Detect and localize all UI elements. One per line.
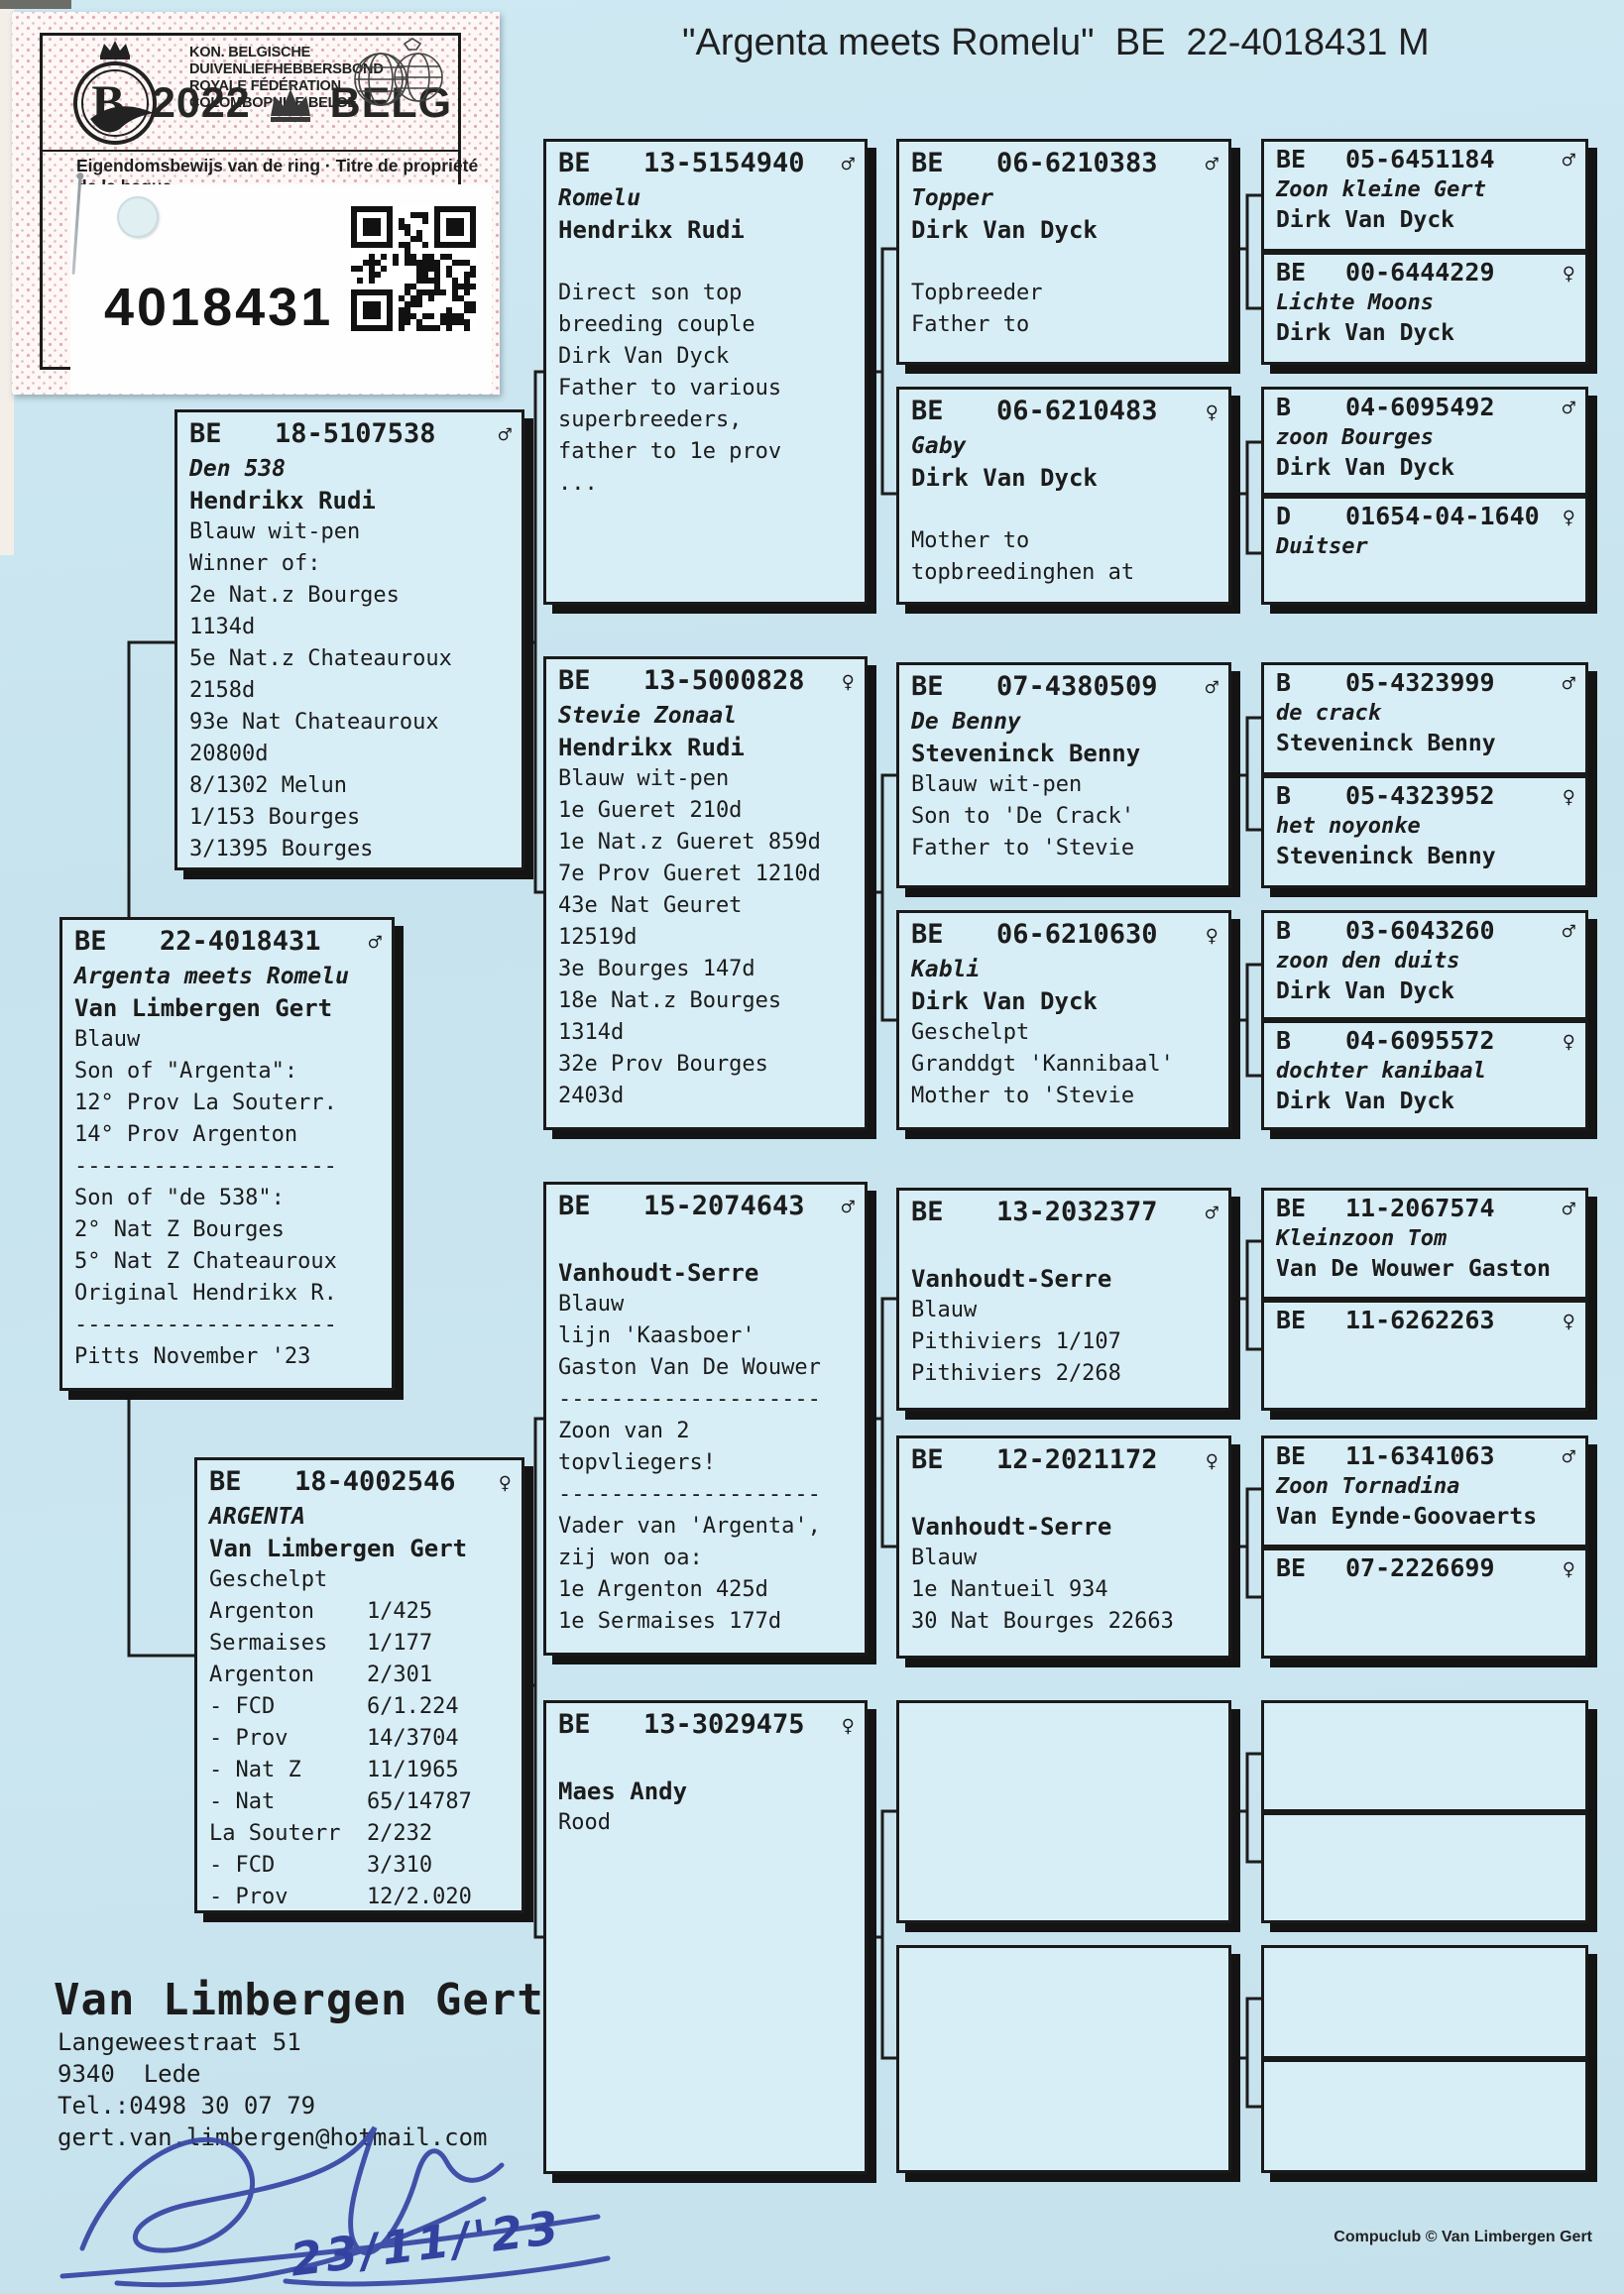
ring-number: 13-2032377: [996, 1194, 1158, 1231]
pedigree-text-line: Argenton 1/425: [209, 1596, 514, 1628]
printer-credit: Compuclub © Van Limbergen Gert: [1334, 2229, 1592, 2246]
pedigree-pair-p3: B05-4323999♂de crackSteveninck BennyB05-…: [1261, 662, 1588, 888]
pedigree-pair-p7: [1261, 1700, 1588, 1923]
pedigree-text-line: 1e Sermaises 177d: [558, 1606, 857, 1638]
pedigree-box-kabli: BE06-6210630♀KabliDirk Van DyckGeschelpt…: [896, 910, 1231, 1130]
ring-row: BE05-6451184♂: [1276, 143, 1577, 175]
bird-name: [1276, 1336, 1577, 1366]
ring-year: 2022: [152, 79, 251, 128]
ring-number: 11-6262263: [1345, 1304, 1495, 1336]
pedigree-pair-p6: BE11-6341063♂Zoon TornadinaVan Eynde-Goo…: [1261, 1435, 1588, 1659]
pedigree-text-line: 8/1302 Melun: [189, 770, 514, 802]
pedigree-text-line: Rood: [558, 1807, 857, 1839]
pedigree-text-line: - FCD 6/1.224: [209, 1691, 514, 1723]
pedigree-text-line: 12519d: [558, 922, 857, 954]
ring-number: 04-6095492: [1345, 391, 1495, 423]
ring-number: 11-6341063: [1345, 1439, 1495, 1472]
ring-country: BE: [1276, 143, 1345, 175]
page-title: "Argenta meets Romelu" BE 22-4018431 M: [682, 22, 1604, 64]
bird-name: [558, 1744, 857, 1776]
pedigree-text-line: - FCD 3/310: [209, 1850, 514, 1882]
pedigree-text-line: 20800d: [189, 739, 514, 770]
pedigree-text-line: ...: [558, 468, 857, 500]
pedigree-box-vh2: BE13-2032377♂ Vanhoudt-SerreBlauwPithivi…: [896, 1188, 1231, 1411]
pedigree-text-line: La Souterr 2/232: [209, 1818, 514, 1850]
pedigree-box-debenny: BE07-4380509♂De BennySteveninck BennyBla…: [896, 662, 1231, 888]
male-icon: ♂: [1563, 668, 1577, 701]
pedigree-text-line: 1134d: [189, 612, 514, 643]
pedigree-text-line: Gaston Van De Wouwer: [558, 1352, 857, 1384]
pedigree-text-line: [911, 494, 1220, 525]
pedigree-text-line: Zoon van 2: [558, 1416, 857, 1447]
pedigree-box-e4c: [1261, 1945, 1588, 2059]
pedigree-box-b6095572: B04-6095572♀dochter kanibaalDirk Van Dyc…: [1261, 1020, 1588, 1130]
bird-name: ARGENTA: [209, 1501, 514, 1533]
ring-country: BE: [911, 393, 996, 430]
ring-country: B: [1276, 779, 1345, 812]
ring-country: BE: [911, 1441, 996, 1479]
male-icon: ♂: [1206, 670, 1220, 708]
ring-number: 13-5000828: [643, 662, 805, 700]
fancier-name: Maes Andy: [558, 1776, 857, 1807]
pedigree-text-line: 30 Nat Bourges 22663: [911, 1606, 1220, 1638]
bird-name: [1276, 1584, 1577, 1614]
pedigree-text-line: father to 1e prov: [558, 436, 857, 468]
ring-row: B05-4323999♂: [1276, 666, 1577, 699]
hole-punch: [117, 196, 159, 238]
pedigree-box-b6444229: BE00-6444229♀Lichte MoonsDirk Van Dyck: [1261, 252, 1588, 365]
pedigree-box-argenta: BE18-4002546♀ARGENTAVan Limbergen GertGe…: [194, 1457, 524, 1913]
pedigree-text-line: Direct son top: [558, 278, 857, 309]
pedigree-text-line: - Nat 65/14787: [209, 1786, 514, 1818]
pedigree-text-line: 3/1395 Bourges: [189, 834, 514, 865]
ring-row: BE07-2226699♀: [1276, 1551, 1577, 1584]
ring-country: BE: [1276, 1439, 1345, 1472]
male-icon: ♂: [1563, 1441, 1577, 1474]
bird-name: [558, 1225, 857, 1257]
ring-country: BE: [911, 1194, 996, 1231]
owner-street: Langeweestraat 51: [58, 2028, 301, 2056]
pedigree-pair-p5: BE11-2067574♂Kleinzoon TomVan De Wouwer …: [1261, 1188, 1588, 1411]
pedigree-text-line: Winner of:: [189, 548, 514, 580]
pedigree-text-line: superbreeders,: [558, 404, 857, 436]
ring-number: 00-6444229: [1345, 256, 1495, 288]
female-icon: ♀: [1206, 1443, 1220, 1481]
pedigree-box-b6451184: BE05-6451184♂Zoon kleine GertDirk Van Dy…: [1261, 139, 1588, 252]
male-icon: ♂: [842, 147, 857, 184]
bird-name: Duitser: [1276, 532, 1577, 562]
pedigree-box-b6341063: BE11-6341063♂Zoon TornadinaVan Eynde-Goo…: [1261, 1435, 1588, 1548]
pedigree-box-romelu: BE13-5154940♂RomeluHendrikx Rudi Direct …: [543, 139, 868, 605]
pedigree-box-stevie: BE13-5000828♀Stevie ZonaalHendrikx RudiB…: [543, 656, 868, 1130]
ring-country: BE: [74, 923, 160, 961]
bird-name: [911, 1231, 1220, 1263]
pedigree-text-line: zij won oa:: [558, 1543, 857, 1574]
ring-row: BE15-2074643♂: [558, 1188, 857, 1225]
fancier-name: Vanhoudt-Serre: [558, 1257, 857, 1289]
pedigree-text-line: 32e Prov Bourges: [558, 1049, 857, 1081]
ring-country: BE: [1276, 256, 1345, 288]
pedigree-text-line: 2e Nat.z Bourges: [189, 580, 514, 612]
pedigree-text-line: - Nat Z 11/1965: [209, 1755, 514, 1786]
ring-number: 03-6043260: [1345, 914, 1495, 947]
bird-name: [911, 1479, 1220, 1511]
male-icon: ♂: [499, 417, 514, 455]
pedigree-text-line: 5° Nat Z Chateauroux: [74, 1246, 384, 1278]
pedigree-pair-p1: BE05-6451184♂Zoon kleine GertDirk Van Dy…: [1261, 139, 1588, 365]
ring-row: BE13-5154940♂: [558, 145, 857, 182]
ring-number: 22-4018431: [160, 923, 321, 961]
pedigree-box-e4b: [1261, 1812, 1588, 1924]
male-icon: ♂: [1563, 393, 1577, 425]
ring-ownership-sticker: B KON. BELGISCHE DUIVENLIEFHEBBERSBOND R…: [12, 12, 500, 395]
fancier-name: Dirk Van Dyck: [911, 214, 1220, 246]
pedigree-text-line: [558, 246, 857, 278]
female-icon: ♀: [1563, 502, 1577, 534]
fancier-name: [1276, 562, 1577, 592]
scan-corner: [0, 0, 71, 9]
crown-icon: [265, 84, 316, 124]
pedigree-text-line: Pithiviers 2/268: [911, 1358, 1220, 1390]
bird-name: Romelu: [558, 182, 857, 214]
pedigree-text-line: - Prov 12/2.020: [209, 1882, 514, 1913]
pedigree-text-line: Blauw: [911, 1543, 1220, 1574]
pedigree-text-line: topbreedinghen at: [911, 557, 1220, 589]
ring-row: BE22-4018431♂: [74, 923, 384, 961]
pedigree-text-line: Father to 'Stevie: [911, 833, 1220, 864]
pedigree-text-line: 1314d: [558, 1017, 857, 1049]
pedigree-text-line: Blauw: [74, 1024, 384, 1056]
bird-name: Kabli: [911, 954, 1220, 985]
male-icon: ♂: [1206, 1196, 1220, 1233]
pedigree-text-line: breeding couple: [558, 309, 857, 341]
pedigree-text-line: - Prov 14/3704: [209, 1723, 514, 1755]
pedigree-text-line: lijn 'Kaasboer': [558, 1320, 857, 1352]
ring-country: BE: [1276, 1304, 1345, 1336]
pedigree-text-line: Son to 'De Crack': [911, 801, 1220, 833]
pedigree-box-b2067574: BE11-2067574♂Kleinzoon TomVan De Wouwer …: [1261, 1188, 1588, 1300]
male-icon: ♂: [369, 925, 384, 963]
ring-row: BE13-5000828♀: [558, 662, 857, 700]
male-icon: ♂: [1563, 1194, 1577, 1226]
ring-row: B05-4323952♀: [1276, 779, 1577, 812]
female-icon: ♀: [499, 1465, 514, 1503]
fancier-name: Steveninck Benny: [1276, 729, 1577, 758]
ring-row: BE06-6210483♀: [911, 393, 1220, 430]
pedigree-text-line: 5e Nat.z Chateauroux: [189, 643, 514, 675]
bird-name: Argenta meets Romelu: [74, 961, 384, 992]
ring-number: 05-4323952: [1345, 779, 1495, 812]
female-icon: ♀: [1563, 1553, 1577, 1586]
ring-country: B: [1276, 391, 1345, 423]
ring-number: 13-3029475: [643, 1706, 805, 1744]
bird-name: De Benny: [911, 706, 1220, 738]
pedigree-text-line: Geschelpt: [911, 1017, 1220, 1049]
pedigree-text-line: --------------------: [558, 1384, 857, 1416]
fancier-name: Van Eynde-Goovaerts: [1276, 1502, 1577, 1532]
ring-row: BE13-3029475♀: [558, 1706, 857, 1744]
pedigree-text-line: --------------------: [558, 1479, 857, 1511]
pedigree-text-line: 2° Nat Z Bourges: [74, 1214, 384, 1246]
pedigree-box-e4d: [1261, 2059, 1588, 2173]
ring-country: BE: [911, 145, 996, 182]
pedigree-text-line: 93e Nat Chateauroux: [189, 707, 514, 739]
ring-number: 4018431: [104, 277, 333, 338]
pedigree-box-vh3: BE12-2021172♀ Vanhoudt-SerreBlauw1e Nant…: [896, 1435, 1231, 1659]
sticker-panel: B KON. BELGISCHE DUIVENLIEFHEBBERSBOND R…: [40, 33, 461, 370]
fancier-name: Dirk Van Dyck: [911, 462, 1220, 494]
ring-country: B: [1276, 1024, 1345, 1057]
pedigree-text-line: Son of "de 538":: [74, 1183, 384, 1214]
female-icon: ♀: [1206, 395, 1220, 432]
bird-name: zoon den duits: [1276, 947, 1577, 976]
ring-row: BE11-2067574♂: [1276, 1192, 1577, 1224]
pedigree-text-line: --------------------: [74, 1151, 384, 1183]
fancier-name: Dirk Van Dyck: [1276, 205, 1577, 235]
pedigree-box-e3a: [896, 1700, 1231, 1923]
ring-number: 07-2226699: [1345, 1551, 1495, 1584]
ring-number: 15-2074643: [643, 1188, 805, 1225]
ring-country: B: [1276, 914, 1345, 947]
pedigree-pair-p4: B03-6043260♂zoon den duitsDirk Van DyckB…: [1261, 910, 1588, 1130]
pedigree-box-b2226699: BE07-2226699♀: [1261, 1548, 1588, 1660]
pedigree-box-topper: BE06-6210383♂TopperDirk Van Dyck Topbree…: [896, 139, 1231, 365]
globes-icon: [343, 38, 452, 119]
sticker-header: B KON. BELGISCHE DUIVENLIEFHEBBERSBOND R…: [43, 36, 458, 152]
pedigree-text-line: topvliegers!: [558, 1447, 857, 1479]
female-icon: ♀: [1206, 918, 1220, 956]
ring-country: B: [1276, 666, 1345, 699]
ring-row: D01654-04-1640♀: [1276, 500, 1577, 532]
fancier-name: Hendrikx Rudi: [189, 485, 514, 516]
fancier-name: Hendrikx Rudi: [558, 214, 857, 246]
pedigree-text-line: Argenton 2/301: [209, 1660, 514, 1691]
ring-number: 06-6210630: [996, 916, 1158, 954]
pedigree-box-e3b: [896, 1945, 1231, 2173]
bird-name: Stevie Zonaal: [558, 700, 857, 732]
bird-name: dochter kanibaal: [1276, 1057, 1577, 1087]
fancier-name: Dirk Van Dyck: [1276, 453, 1577, 483]
pedigree-text-line: Father to various: [558, 373, 857, 404]
pedigree-text-line: 1e Argenton 425d: [558, 1574, 857, 1606]
male-icon: ♂: [1563, 916, 1577, 949]
pedigree-text-line: Blauw: [911, 1295, 1220, 1326]
pedigree-pair-p2: B04-6095492♂zoon BourgesDirk Van DyckD01…: [1261, 387, 1588, 605]
fancier-name: Dirk Van Dyck: [1276, 318, 1577, 348]
pedigree-text-line: Original Hendrikx R.: [74, 1278, 384, 1310]
bird-name: Topper: [911, 182, 1220, 214]
ring-number: 18-4002546: [294, 1463, 456, 1501]
pedigree-text-line: Sermaises 1/177: [209, 1628, 514, 1660]
pedigree-text-line: 2158d: [189, 675, 514, 707]
pedigree-text-line: 43e Nat Geuret: [558, 890, 857, 922]
pedigree-text-line: Mother to: [911, 525, 1220, 557]
ring-number: 01654-04-1640: [1345, 500, 1540, 532]
ring-number: 05-6451184: [1345, 143, 1495, 175]
ring-country: BE: [558, 1706, 643, 1744]
pedigree-text-line: Mother to 'Stevie: [911, 1081, 1220, 1112]
fancier-name: Dirk Van Dyck: [1276, 1087, 1577, 1116]
pedigree-text-line: Dirk Van Dyck: [558, 341, 857, 373]
pedigree-text-line: Topbreeder: [911, 278, 1220, 309]
qr-code: [351, 206, 478, 333]
owner-name: Van Limbergen Gert: [54, 1975, 544, 2025]
ring-country: BE: [558, 145, 643, 182]
ring-number: 11-2067574: [1345, 1192, 1495, 1224]
fancier-name: Van Limbergen Gert: [209, 1533, 514, 1564]
pedigree-text-line: Granddgt 'Kannibaal': [911, 1049, 1220, 1081]
bird-name: Zoon Tornadina: [1276, 1472, 1577, 1502]
ring-row: BE13-2032377♂: [911, 1194, 1220, 1231]
pedigree-text-line: Blauw wit-pen: [558, 763, 857, 795]
pedigree-text-line: 18e Nat.z Bourges: [558, 985, 857, 1017]
ring-number: 18-5107538: [275, 415, 436, 453]
ring-row: BE18-5107538♂: [189, 415, 514, 453]
pedigree-box-b6095492: B04-6095492♂zoon BourgesDirk Van Dyck: [1261, 387, 1588, 496]
pedigree-text-line: Blauw wit-pen: [911, 769, 1220, 801]
pedigree-text-line: Son of "Argenta":: [74, 1056, 384, 1088]
fancier-name: Hendrikx Rudi: [558, 732, 857, 763]
pedigree-sheet: B KON. BELGISCHE DUIVENLIEFHEBBERSBOND R…: [0, 0, 1624, 2294]
pedigree-text-line: Pitts November '23: [74, 1341, 384, 1373]
pedigree-box-vhsire: BE15-2074643♂ Vanhoudt-SerreBlauwlijn 'K…: [543, 1182, 868, 1656]
bird-name: Gaby: [911, 430, 1220, 462]
ring-country: BE: [558, 1188, 643, 1225]
bird-name: Den 538: [189, 453, 514, 485]
pedigree-box-gaby: BE06-6210483♀GabyDirk Van Dyck Mother to…: [896, 387, 1231, 605]
pedigree-text-line: 1e Nat.z Gueret 859d: [558, 827, 857, 859]
ring-country: BE: [911, 668, 996, 706]
pedigree-box-b4323952: B05-4323952♀het noyonkeSteveninck Benny: [1261, 775, 1588, 888]
pedigree-text-line: --------------------: [74, 1310, 384, 1341]
fancier-name: Van Limbergen Gert: [74, 992, 384, 1024]
male-icon: ♂: [1563, 145, 1577, 177]
ring-row: BE06-6210630♀: [911, 916, 1220, 954]
female-icon: ♀: [1563, 781, 1577, 814]
bird-name: Lichte Moons: [1276, 288, 1577, 318]
ring-number: 05-4323999: [1345, 666, 1495, 699]
female-icon: ♀: [842, 1708, 857, 1746]
male-icon: ♂: [1206, 147, 1220, 184]
female-icon: ♀: [1563, 1026, 1577, 1059]
fancier-name: Dirk Van Dyck: [911, 985, 1220, 1017]
bird-name: Zoon kleine Gert: [1276, 175, 1577, 205]
ring-row: B03-6043260♂: [1276, 914, 1577, 947]
fancier-name: Dirk Van Dyck: [1276, 976, 1577, 1006]
pedigree-text-line: 2403d: [558, 1081, 857, 1112]
ring-number: 12-2021172: [996, 1441, 1158, 1479]
fancier-name: [1276, 1614, 1577, 1644]
pedigree-text-line: 3e Bourges 147d: [558, 954, 857, 985]
pedigree-text-line: 1/153 Bourges: [189, 802, 514, 834]
sticker-body: 4018431: [70, 184, 492, 394]
fancier-name: Vanhoudt-Serre: [911, 1511, 1220, 1543]
pedigree-text-line: Vader van 'Argenta',: [558, 1511, 857, 1543]
pedigree-box-e4a: [1261, 1700, 1588, 1812]
ring-number: 13-5154940: [643, 145, 805, 182]
fancier-name: Van De Wouwer Gaston: [1276, 1254, 1577, 1284]
ring-number: 06-6210483: [996, 393, 1158, 430]
pin-icon: [72, 175, 82, 275]
ring-country: BE: [189, 415, 275, 453]
pedigree-text-line: 1e Nantueil 934: [911, 1574, 1220, 1606]
ring-row: BE11-6341063♂: [1276, 1439, 1577, 1472]
pedigree-box-den538: BE18-5107538♂Den 538Hendrikx RudiBlauw w…: [174, 409, 524, 870]
ring-row: BE07-4380509♂: [911, 668, 1220, 706]
pedigree-text-line: Geschelpt: [209, 1564, 514, 1596]
ring-row: BE06-6210383♂: [911, 145, 1220, 182]
pedigree-text-line: Father to: [911, 309, 1220, 341]
ring-number: 06-6210383: [996, 145, 1158, 182]
ring-country: D: [1276, 500, 1345, 532]
pedigree-box-b6043260: B03-6043260♂zoon den duitsDirk Van Dyck: [1261, 910, 1588, 1020]
ring-row: BE12-2021172♀: [911, 1441, 1220, 1479]
ring-row: B04-6095492♂: [1276, 391, 1577, 423]
owner-city: 9340 Lede: [58, 2060, 201, 2088]
fancier-name: Steveninck Benny: [911, 738, 1220, 769]
pedigree-text-line: 12° Prov La Souterr.: [74, 1088, 384, 1119]
male-icon: ♂: [842, 1190, 857, 1227]
ring-country: BE: [911, 916, 996, 954]
ring-row: BE00-6444229♀: [1276, 256, 1577, 288]
ring-country: BE: [558, 662, 643, 700]
fancier-name: [1276, 1366, 1577, 1396]
ring-row: BE11-6262263♀: [1276, 1304, 1577, 1336]
pedigree-text-line: Blauw: [558, 1289, 857, 1320]
pedigree-pair-p8: [1261, 1945, 1588, 2173]
pedigree-text-line: Blauw wit-pen: [189, 516, 514, 548]
fancier-name: Vanhoudt-Serre: [911, 1263, 1220, 1295]
pedigree-text-line: 7e Prov Gueret 1210d: [558, 859, 857, 890]
ring-number: 07-4380509: [996, 668, 1158, 706]
ring-row: B04-6095572♀: [1276, 1024, 1577, 1057]
pedigree-text-line: 14° Prov Argenton: [74, 1119, 384, 1151]
pedigree-box-b4323999: B05-4323999♂de crackSteveninck Benny: [1261, 662, 1588, 775]
female-icon: ♀: [842, 664, 857, 702]
pedigree-text-line: 1e Gueret 210d: [558, 795, 857, 827]
pedigree-text-line: [911, 246, 1220, 278]
ring-country: BE: [1276, 1192, 1345, 1224]
bird-name: het noyonke: [1276, 812, 1577, 842]
bird-name: Kleinzoon Tom: [1276, 1224, 1577, 1254]
pedigree-text-line: Pithiviers 1/107: [911, 1326, 1220, 1358]
bird-name: zoon Bourges: [1276, 423, 1577, 453]
ring-country: BE: [209, 1463, 294, 1501]
ring-number: 04-6095572: [1345, 1024, 1495, 1057]
ring-row: BE18-4002546♀: [209, 1463, 514, 1501]
pedigree-box-b6262263: BE11-6262263♀: [1261, 1300, 1588, 1412]
pedigree-box-subject: BE22-4018431♂Argenta meets RomeluVan Lim…: [59, 917, 395, 1391]
pedigree-box-d1640: D01654-04-1640♀Duitser: [1261, 496, 1588, 605]
female-icon: ♀: [1563, 1306, 1577, 1338]
bird-name: de crack: [1276, 699, 1577, 729]
fancier-name: Steveninck Benny: [1276, 842, 1577, 871]
ring-country: BE: [1276, 1551, 1345, 1584]
female-icon: ♀: [1563, 258, 1577, 290]
